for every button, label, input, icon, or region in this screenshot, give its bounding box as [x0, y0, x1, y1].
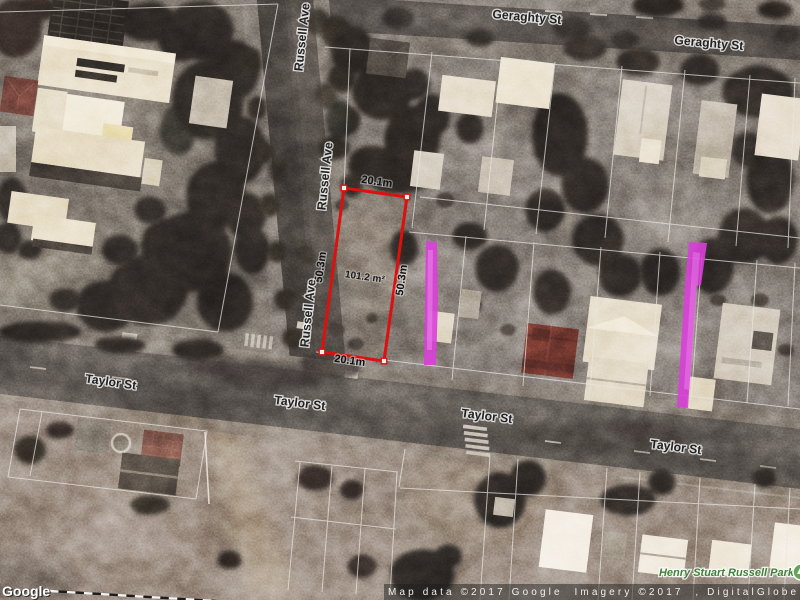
- svg-text:Henry Stuart Russell Park: Henry Stuart Russell Park: [659, 567, 795, 579]
- svg-text:Google: Google: [2, 583, 50, 599]
